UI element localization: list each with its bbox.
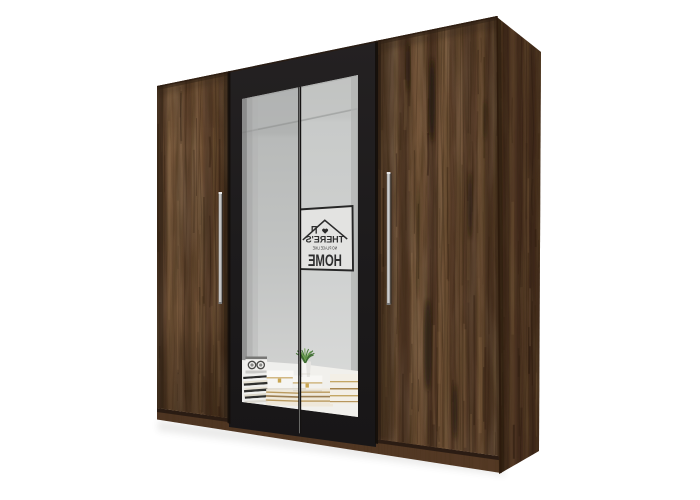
svg-text:NO PLACE LIKE: NO PLACE LIKE [313, 246, 338, 251]
svg-text:THERE'S: THERE'S [306, 235, 345, 245]
svg-text:HOME: HOME [308, 252, 342, 270]
